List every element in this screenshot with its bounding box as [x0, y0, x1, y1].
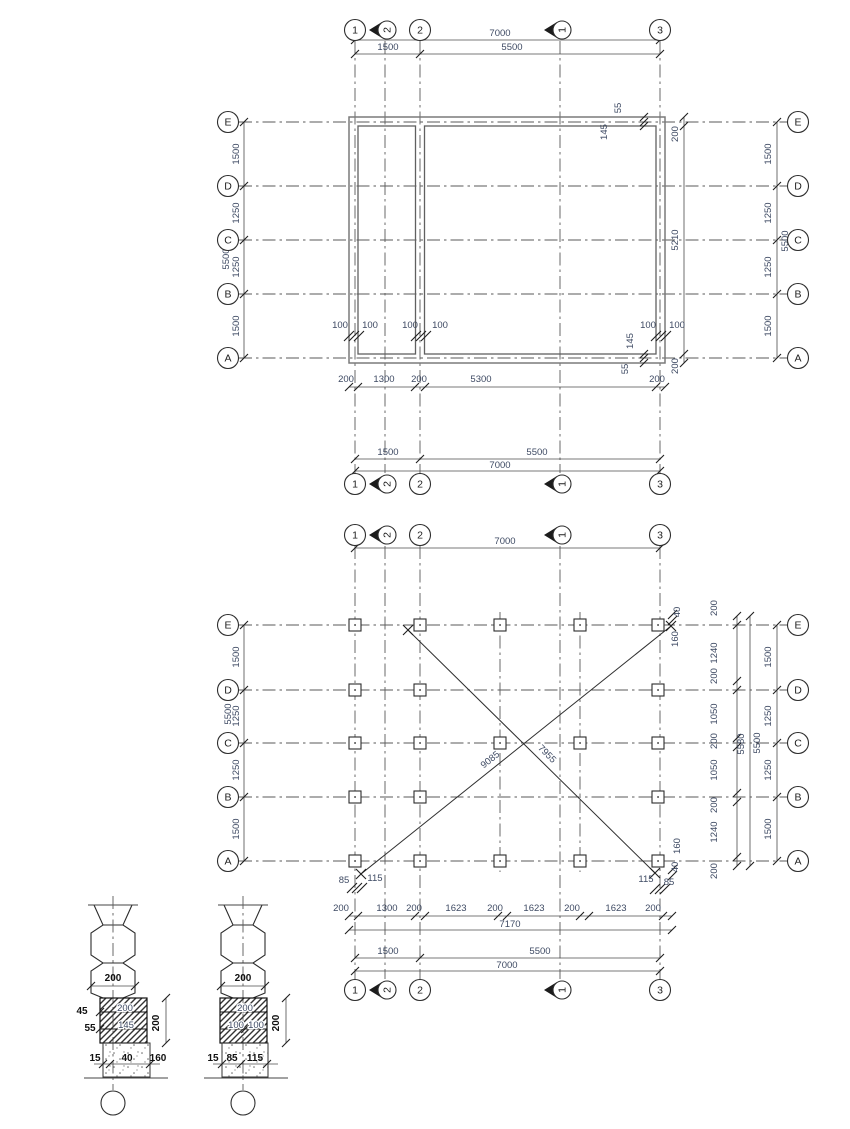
dim-label: 1623: [523, 903, 544, 914]
dim-label: 1050: [709, 703, 720, 724]
grid-bubble: C: [788, 230, 809, 251]
dim-label: 15: [89, 1053, 101, 1064]
dim-label: 200: [709, 668, 720, 684]
section-label: 2: [382, 27, 394, 33]
axis-bubble-empty: [101, 1091, 125, 1115]
section-marker: 1: [544, 21, 571, 39]
grid-bubble: A: [788, 348, 809, 369]
detail-2: 200 200 100 100 200 15 85 115: [204, 896, 290, 1115]
grid-bubble: C: [218, 230, 239, 251]
axis-bubble-empty: [231, 1091, 255, 1115]
grid-bubble: A: [788, 851, 809, 872]
dim-label: 200: [333, 903, 349, 914]
section-label: 2: [382, 987, 394, 993]
wall-thickness-label: 100: [362, 320, 378, 331]
grid-label: A: [224, 856, 231, 868]
section-label: 1: [557, 987, 569, 993]
dim-label: 5500: [526, 447, 547, 458]
dim-label: 200: [151, 1014, 162, 1031]
dim-label: 1500: [231, 818, 242, 839]
dim-label: 200: [271, 1014, 282, 1031]
wall-thickness-label: 100: [640, 320, 656, 331]
section-marker: 1: [544, 981, 571, 999]
plan1: 7000 1500 5500 1500 1250 1250 1500 5500 …: [221, 28, 791, 475]
diagonal-check-line: [361, 626, 671, 874]
drawing-sheet: 7000 1500 5500 1500 1250 1250 1500 5500 …: [0, 0, 850, 1129]
wall-thickness-label: 100: [402, 320, 418, 331]
dim-label: 200: [338, 374, 354, 385]
grid-bubble: C: [218, 733, 239, 754]
grid-label: C: [794, 738, 802, 750]
dim-label: 7000: [496, 960, 517, 971]
grid-bubble: 3: [650, 20, 671, 41]
dim-label: 1500: [763, 818, 774, 839]
wall-thickness-label: 100: [432, 320, 448, 331]
dim-label: 1623: [445, 903, 466, 914]
detail-1: 200 200 145 45 55 200 15 40 160: [76, 896, 170, 1115]
section-marker: 1: [544, 526, 571, 544]
plan2-horizontal-gridlines: [239, 625, 787, 861]
grid-label: 3: [657, 530, 663, 542]
dim-label: 7000: [489, 28, 510, 39]
dim-label: 1240: [709, 821, 720, 842]
grid-bubble: A: [218, 851, 239, 872]
grid-label: A: [794, 353, 801, 365]
grid-bubble: 2: [410, 980, 431, 1001]
grid-bubble: D: [788, 176, 809, 197]
section-label: 2: [382, 481, 394, 487]
diagonal-length-label: 9085: [479, 749, 502, 771]
dim-label: 7000: [494, 536, 515, 547]
dim-label: 1250: [231, 256, 242, 277]
grid-label: B: [224, 289, 231, 301]
grid-label: E: [224, 117, 231, 129]
plan2-dimension-lines: [244, 548, 777, 971]
dim-label: 85: [226, 1053, 238, 1064]
plan1-dimension-lines: [244, 40, 777, 471]
grid-label: 2: [417, 25, 423, 37]
cad-drawing: 7000 1500 5500 1500 1250 1250 1500 5500 …: [0, 0, 850, 1129]
grid-bubble: 1: [345, 525, 366, 546]
section-marker: 1: [544, 475, 571, 493]
dim-label: 200: [117, 1003, 133, 1014]
section-marker: 2: [369, 21, 396, 39]
grid-bubble: D: [218, 176, 239, 197]
dim-label: 1050: [709, 759, 720, 780]
offset-label: 40: [670, 862, 681, 873]
diagonal-check-line: [408, 630, 655, 873]
dim-label: 5500: [752, 732, 763, 753]
wall-thickness-label: 145: [599, 124, 610, 140]
dim-label: 7000: [489, 460, 510, 471]
wall-thickness-label: 55: [613, 103, 624, 114]
wall-thickness-label: 55: [620, 364, 631, 375]
dim-label: 1500: [377, 447, 398, 458]
dim-label: 7170: [499, 919, 520, 930]
grid-label: E: [794, 620, 801, 632]
grid-label: B: [794, 792, 801, 804]
section-label: 1: [557, 27, 569, 33]
dim-label: 5580: [736, 733, 747, 754]
dim-label: 200: [564, 903, 580, 914]
grid-bubble: A: [218, 348, 239, 369]
dim-label: 200: [649, 374, 665, 385]
dim-label: 5500: [501, 42, 522, 53]
grid-bubbles: 1 2 2 1 3 1 2 2 1 3 E D C B A E D C B A …: [218, 20, 809, 1001]
dim-label: 200: [406, 903, 422, 914]
dim-label: 100: [248, 1020, 264, 1031]
grid-label: 3: [657, 479, 663, 491]
dim-label: 5210: [670, 229, 681, 250]
grid-bubble: 1: [345, 20, 366, 41]
plan1-horizontal-gridlines: [239, 122, 787, 358]
dim-label: 160: [150, 1053, 167, 1064]
dim-label: 200: [709, 600, 720, 616]
grid-bubble: B: [218, 787, 239, 808]
dim-label: 5500: [221, 248, 232, 269]
dim-label: 200: [235, 973, 252, 984]
dim-label: 200: [709, 863, 720, 879]
grid-label: 1: [352, 25, 358, 37]
grid-label: 1: [352, 985, 358, 997]
grid-label: C: [224, 235, 232, 247]
dim-label: 1500: [377, 42, 398, 53]
grid-label: E: [794, 117, 801, 129]
dim-label: 1250: [231, 759, 242, 780]
offset-label: 40: [672, 607, 683, 618]
plan2-vertical-gridlines: [355, 546, 660, 979]
dim-label: 100: [228, 1020, 244, 1031]
grid-bubble: 3: [650, 525, 671, 546]
dim-label: 1500: [763, 143, 774, 164]
dim-label: 200: [411, 374, 427, 385]
grid-label: B: [794, 289, 801, 301]
offset-label: 160: [672, 838, 683, 854]
dim-label: 1500: [231, 315, 242, 336]
dim-label: 1250: [763, 759, 774, 780]
dim-label: 55: [84, 1023, 96, 1034]
dim-label: 1250: [763, 705, 774, 726]
dim-label: 1250: [231, 202, 242, 223]
dim-label: 15: [207, 1053, 219, 1064]
grid-bubble: 3: [650, 980, 671, 1001]
grid-bubble: D: [218, 680, 239, 701]
grid-label: A: [224, 353, 231, 365]
grid-label: D: [794, 685, 802, 697]
dim-label: 1240: [709, 642, 720, 663]
offset-label: 115: [638, 874, 653, 885]
diagonal-length-label: 7955: [535, 743, 558, 766]
dim-label: 5500: [223, 703, 234, 724]
section-label: 2: [382, 532, 394, 538]
grid-bubble: C: [788, 733, 809, 754]
grid-label: 2: [417, 479, 423, 491]
grid-label: D: [794, 181, 802, 193]
grid-label: 3: [657, 25, 663, 37]
dim-label: 40: [121, 1053, 133, 1064]
grid-label: 2: [417, 985, 423, 997]
grid-label: D: [224, 685, 232, 697]
dim-label: 200: [487, 903, 503, 914]
grid-label: D: [224, 181, 232, 193]
dim-label: 1250: [763, 202, 774, 223]
grid-label: A: [794, 856, 801, 868]
dim-label: 1500: [231, 143, 242, 164]
grid-bubble: 1: [345, 474, 366, 495]
dim-label: 200: [709, 733, 720, 749]
grid-bubble: E: [218, 112, 239, 133]
grid-bubble: E: [218, 615, 239, 636]
dim-label: 1500: [763, 315, 774, 336]
dim-label: 1500: [763, 646, 774, 667]
grid-label: C: [224, 738, 232, 750]
wall-thickness-label: 100: [669, 320, 685, 331]
plan1-dimension-ticks: [240, 36, 781, 475]
grid-label: 1: [352, 479, 358, 491]
grid-label: E: [224, 620, 231, 632]
plan2: 7000 1500 1250 1250 1500 5500 200 1240 2…: [223, 536, 787, 979]
grid-bubble: E: [788, 615, 809, 636]
grid-label: 1: [352, 530, 358, 542]
dim-label: 115: [247, 1053, 264, 1064]
grid-label: 3: [657, 985, 663, 997]
grid-bubble: B: [788, 787, 809, 808]
dim-label: 1500: [231, 646, 242, 667]
dim-label: 200: [237, 1003, 253, 1014]
section-label: 1: [557, 532, 569, 538]
grid-bubble: 1: [345, 980, 366, 1001]
wall-thickness-label: 145: [625, 333, 636, 349]
dim-label: 45: [76, 1006, 88, 1017]
offset-label: 160: [670, 631, 681, 647]
offset-label: 115: [367, 873, 382, 884]
dim-label: 1300: [376, 903, 397, 914]
dim-label: 200: [670, 358, 681, 374]
plan2-dimension-ticks: [240, 544, 781, 975]
section-marker: 2: [369, 981, 396, 999]
offset-label: 85: [664, 877, 675, 888]
grid-label: B: [224, 792, 231, 804]
dim-label: 1250: [763, 256, 774, 277]
grid-bubble: 2: [410, 474, 431, 495]
grid-bubble: 2: [410, 525, 431, 546]
offset-label: 85: [339, 875, 350, 886]
wall-thickness-label: 100: [332, 320, 348, 331]
dim-label: 200: [709, 797, 720, 813]
grid-bubble: B: [788, 284, 809, 305]
dim-label: 200: [645, 903, 661, 914]
dim-label: 1300: [373, 374, 394, 385]
grid-bubble: D: [788, 680, 809, 701]
dim-label: 145: [118, 1020, 134, 1031]
dim-label: 5500: [529, 946, 550, 957]
section-marker: 2: [369, 475, 396, 493]
dim-label: 200: [105, 973, 122, 984]
grid-bubble: 2: [410, 20, 431, 41]
grid-bubble: 3: [650, 474, 671, 495]
section-label: 1: [557, 481, 569, 487]
grid-bubble: B: [218, 284, 239, 305]
dim-label: 5300: [470, 374, 491, 385]
dim-label: 200: [670, 126, 681, 142]
grid-label: C: [794, 235, 802, 247]
dim-label: 1623: [605, 903, 626, 914]
dim-label: 1500: [377, 946, 398, 957]
grid-label: 2: [417, 530, 423, 542]
grid-bubble: E: [788, 112, 809, 133]
section-marker: 2: [369, 526, 396, 544]
